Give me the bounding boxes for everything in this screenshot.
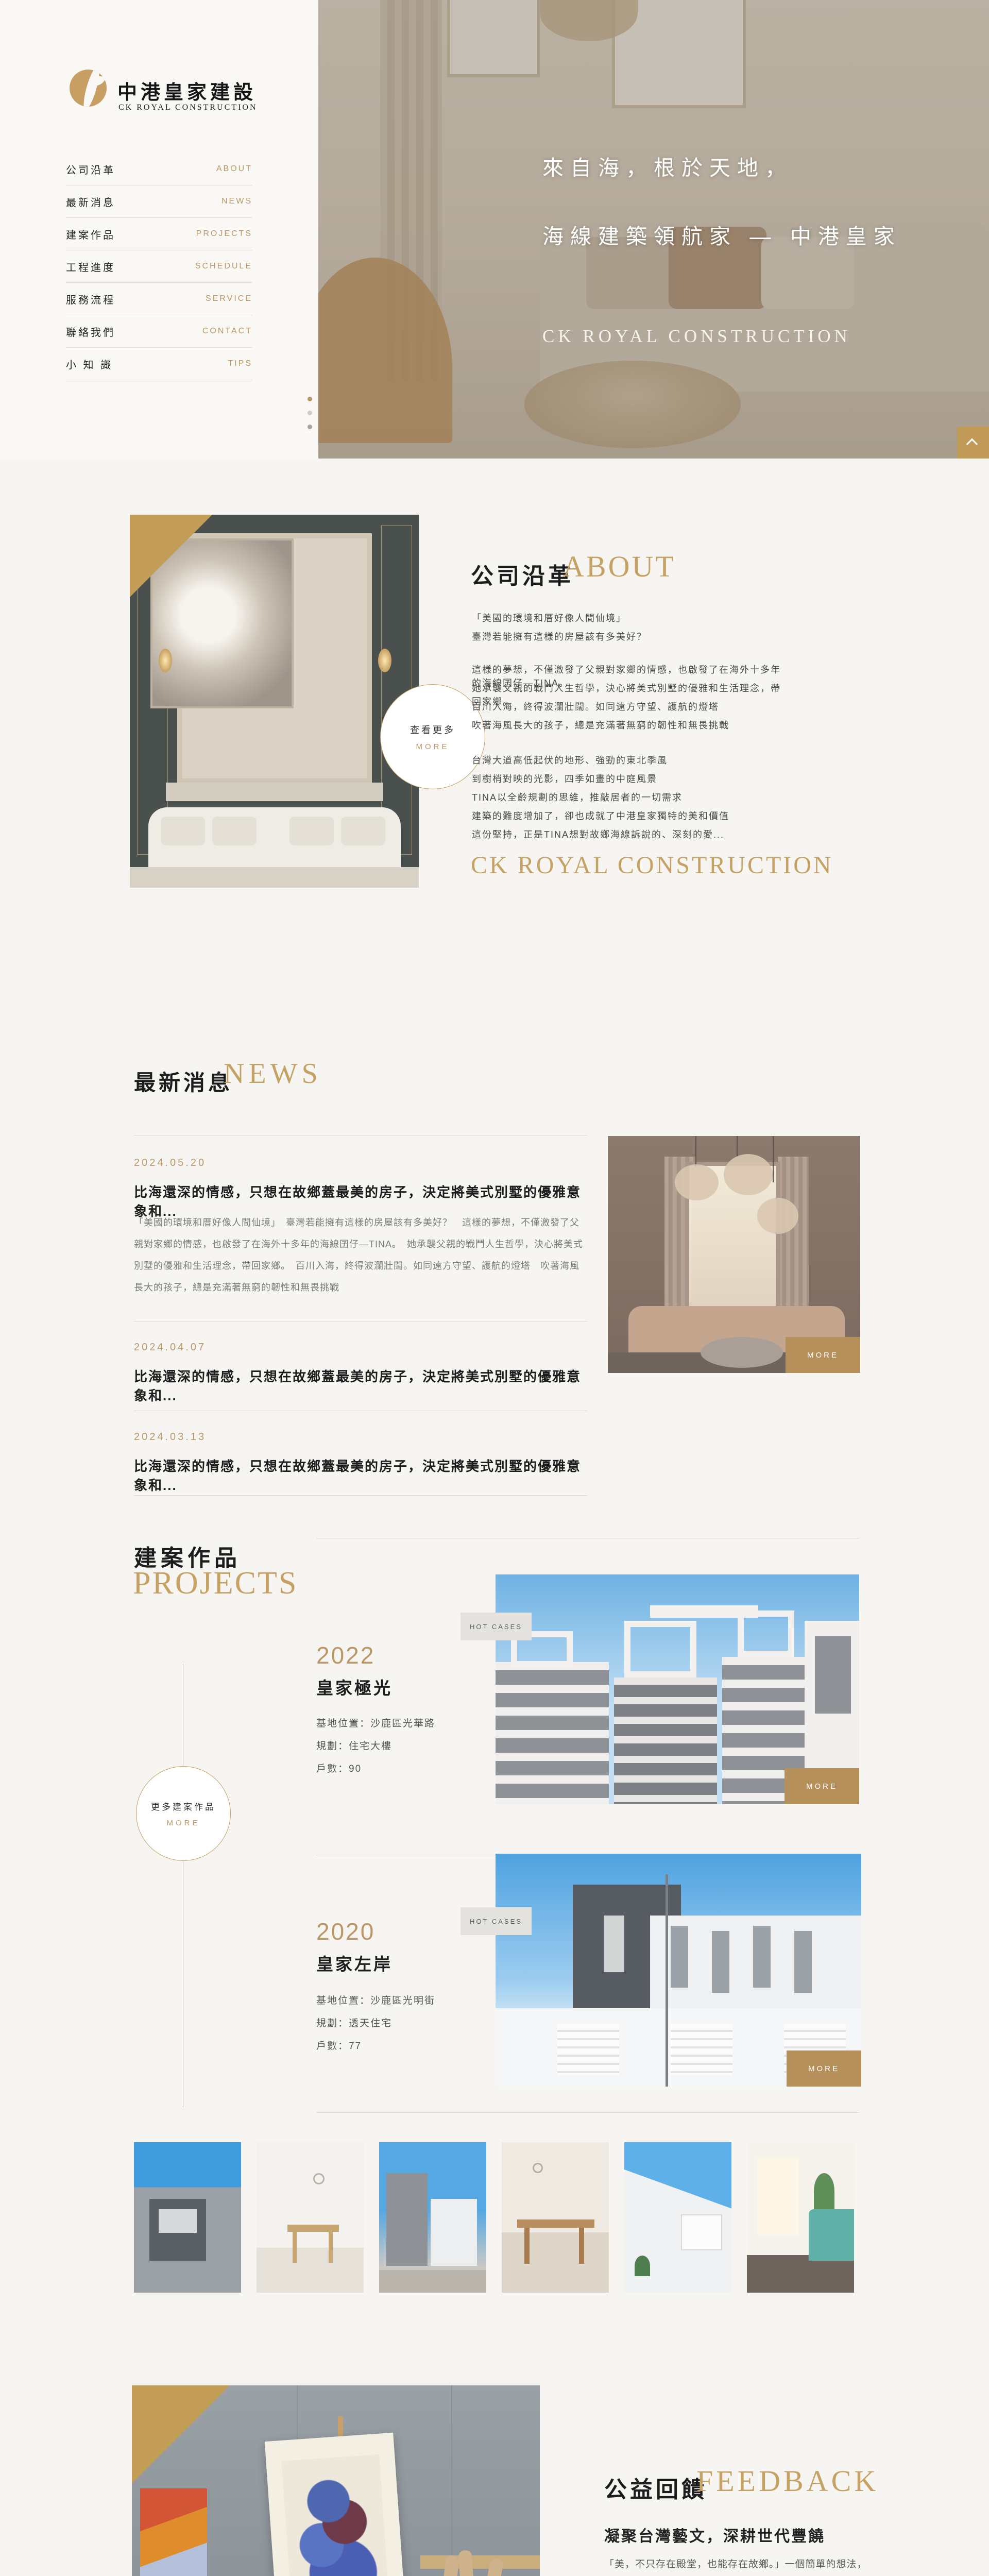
- hero-headline-2: 海線建築領航家 — 中港皇家: [542, 219, 901, 250]
- nav-label-zh: 服務流程: [66, 292, 115, 307]
- nav-label-en: PROJECTS: [196, 229, 252, 239]
- about-paragraph-line: 百川入海，終得波瀾壯闊。如同遠方守望、護航的燈塔: [472, 700, 781, 713]
- sidebar-item-projects[interactable]: 建案作品 PROJECTS: [66, 218, 252, 250]
- nav-label-zh: 公司沿革: [66, 162, 115, 177]
- about-paragraph-line: 這份堅持，正是TINA想對故鄉海線訴說的、深刻的愛...: [472, 827, 781, 841]
- about-paragraph-line: 吹著海風長大的孩子，總是充滿著無窮的韌性和無畏挑戰: [472, 718, 781, 732]
- sidebar-item-news[interactable]: 最新消息 NEWS: [66, 185, 252, 218]
- nav-label-en: ABOUT: [216, 164, 252, 174]
- about-paragraph-line: 到樹梢對映的光影，四季如畫的中庭風景: [472, 772, 781, 785]
- feedback-line: 「美，不只存在殿堂，也能存在故鄉。」一個簡單的想法，: [604, 2556, 872, 2570]
- gallery-thumb-dining[interactable]: [257, 2142, 364, 2293]
- project-spec: 戶數：90: [316, 1761, 362, 1775]
- project-year: 2020: [316, 1918, 375, 1945]
- about-title-zh: 公司沿革: [471, 557, 574, 590]
- carousel-dot[interactable]: [308, 411, 312, 415]
- carousel-dot[interactable]: [308, 425, 312, 429]
- hot-cases-tag: HOT CASES: [461, 1907, 532, 1935]
- sidebar-item-contact[interactable]: 聯絡我們 CONTACT: [66, 315, 252, 348]
- project-more-button[interactable]: MORE: [787, 2050, 861, 2087]
- sidebar-item-schedule[interactable]: 工程進度 SCHEDULE: [66, 250, 252, 283]
- news-item-title[interactable]: 比海還深的情感，只想在故鄉蓋最美的房子，決定將美式別墅的優雅意象和...: [134, 1366, 587, 1404]
- nav-label-zh: 聯絡我們: [66, 324, 115, 339]
- gallery-thumb-teal-livingroom[interactable]: [747, 2142, 854, 2293]
- sidebar-item-about[interactable]: 公司沿革 ABOUT: [66, 153, 252, 185]
- scroll-top-button[interactable]: [957, 427, 989, 459]
- project-spec: 基地位置：沙鹿區光華路: [316, 1716, 435, 1730]
- chevron-up-icon: [966, 438, 978, 450]
- more-label-zh: 更多建案作品: [151, 1800, 216, 1812]
- about-title-en: ABOUT: [562, 549, 676, 584]
- hero-headline-1: 來自海，根於天地，: [542, 150, 793, 181]
- page: 中港皇家建設 CK ROYAL CONSTRUCTION 公司沿革 ABOUT …: [0, 0, 989, 2576]
- gallery-thumb-signage[interactable]: [134, 2142, 241, 2293]
- nav-label-zh: 建案作品: [66, 227, 115, 242]
- more-label-zh: 查看更多: [410, 723, 455, 736]
- about-photo-classic-livingroom: [130, 515, 419, 888]
- news-item-excerpt: 「美國的環境和厝好像人間仙境」 臺灣若能擁有這樣的房屋該有多美好？ 這樣的夢想，…: [134, 1212, 587, 1298]
- brand-logo-icon: [70, 70, 107, 107]
- nav-label-en: SERVICE: [206, 294, 252, 303]
- feedback-title-en: FEEDBACK: [696, 2464, 879, 2498]
- project-year: 2022: [316, 1641, 375, 1669]
- hero-subtitle: CK ROYAL CONSTRUCTION: [542, 326, 851, 347]
- about-paragraph-line: 建築的難度增加了，卻也成就了中港皇家獨特的美和價值: [472, 809, 781, 822]
- about-more-button[interactable]: 查看更多 MORE: [380, 684, 485, 789]
- hot-cases-tag: HOT CASES: [461, 1613, 532, 1640]
- hero-photo-living-room: 來自海，根於天地， 海線建築領航家 — 中港皇家 CK ROYAL CONSTR…: [318, 0, 989, 459]
- about-paragraph-line: 台灣大道高低起伏的地形、強勁的東北季風: [472, 753, 781, 767]
- feedback-title-zh: 公益回饋: [604, 2471, 707, 2504]
- news-title-en: NEWS: [224, 1057, 322, 1090]
- news-item-date: 2024.03.13: [134, 1431, 206, 1443]
- news-item-date: 2024.05.20: [134, 1157, 206, 1169]
- project-name: 皇家極光: [316, 1674, 393, 1699]
- gallery-thumb-white-building[interactable]: [624, 2142, 731, 2293]
- about-paragraph-line: TINA以全齡規劃的思維，推敲居者的一切需求: [472, 790, 781, 804]
- carousel-dot-active[interactable]: [308, 397, 312, 401]
- nav-label-en: NEWS: [221, 197, 252, 206]
- gold-corner-accent: [132, 2385, 230, 2483]
- sidebar-item-service[interactable]: 服務流程 SERVICE: [66, 283, 252, 315]
- news-more-button[interactable]: MORE: [786, 1337, 860, 1373]
- news-title-zh: 最新消息: [134, 1065, 233, 1097]
- more-label-en: MORE: [167, 1819, 200, 1827]
- nav-label-zh: 小 知 識: [66, 357, 113, 371]
- project-more-button[interactable]: MORE: [785, 1768, 859, 1804]
- brand-subtitle: CK ROYAL CONSTRUCTION: [118, 103, 258, 112]
- news-item-title[interactable]: 比海還深的情感，只想在故鄉蓋最美的房子，決定將美式別墅的優雅意象和...: [134, 1456, 587, 1494]
- gallery-thumb-wood-dining[interactable]: [502, 2142, 609, 2293]
- about-paragraph-line: 臺灣若能擁有這樣的房屋該有多美好？: [472, 630, 781, 643]
- about-brand-wordmark: CK ROYAL CONSTRUCTION: [471, 851, 833, 879]
- sidebar-item-tips[interactable]: 小 知 識 TIPS: [66, 348, 252, 380]
- projects-more-button[interactable]: 更多建案作品 MORE: [136, 1766, 231, 1861]
- nav-label-zh: 最新消息: [66, 194, 115, 209]
- brand-title: 中港皇家建設: [117, 76, 257, 105]
- sidebar: 中港皇家建設 CK ROYAL CONSTRUCTION 公司沿革 ABOUT …: [0, 0, 318, 459]
- feedback-photo-art-studio: [132, 2385, 540, 2576]
- nav-label-en: TIPS: [228, 359, 252, 368]
- project-name: 皇家左岸: [316, 1951, 393, 1975]
- project-spec: 戶數：77: [316, 2038, 362, 2052]
- nav-label-en: SCHEDULE: [195, 262, 252, 271]
- project-spec: 規劃：住宅大樓: [316, 1738, 392, 1752]
- project-spec: 規劃：透天住宅: [316, 2015, 392, 2029]
- feedback-subtitle: 凝聚台灣藝文，深耕世代豐饒: [604, 2523, 825, 2546]
- nav-label-en: CONTACT: [202, 327, 252, 336]
- more-label-en: MORE: [416, 742, 450, 751]
- project-spec: 基地位置：沙鹿區光明街: [316, 1993, 435, 2007]
- projects-title-en: PROJECTS: [133, 1565, 298, 1602]
- about-paragraph-line: 「美國的環境和厝好像人間仙境」: [472, 611, 781, 624]
- gallery-thumb-street-view[interactable]: [379, 2142, 486, 2293]
- nav-label-zh: 工程進度: [66, 259, 115, 274]
- news-item-date: 2024.04.07: [134, 1342, 206, 1353]
